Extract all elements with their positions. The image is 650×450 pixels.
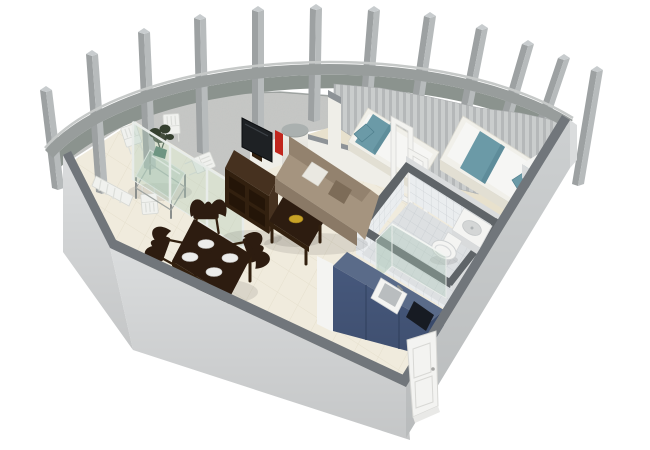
floor-plan-stage: 3D isometric floor plan rendering of a s… <box>0 0 650 450</box>
door-knob <box>431 367 435 371</box>
plate <box>206 268 222 277</box>
kitchen-end-panel <box>317 256 333 332</box>
plate <box>182 253 198 262</box>
plate <box>222 254 238 263</box>
plate <box>198 240 214 249</box>
curve-partition-post <box>328 90 341 152</box>
entrance-door <box>407 331 440 423</box>
floor-plan-render: 3D isometric floor plan rendering of a s… <box>0 0 650 450</box>
gold-bowl <box>289 215 303 223</box>
red-speaker <box>275 130 283 156</box>
